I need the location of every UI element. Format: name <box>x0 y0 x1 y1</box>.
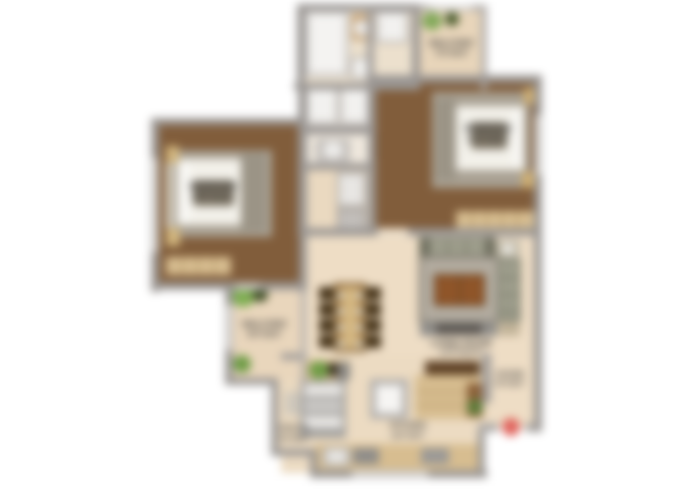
svg-text:3'0"X8'0": 3'0"X8'0" <box>279 436 309 443</box>
svg-text:11'0"X10'0": 11'0"X10'0" <box>467 134 510 143</box>
svg-text:5'0"X6'0": 5'0"X6'0" <box>495 381 525 388</box>
svg-text:FOYER: FOYER <box>496 370 524 379</box>
svg-text:BALCONY: BALCONY <box>243 319 288 329</box>
svg-text:8'0"X4'6": 8'0"X4'6" <box>248 330 283 339</box>
svg-text:LIVING ROOM: LIVING ROOM <box>431 338 492 348</box>
svg-text:BEDROOM: BEDROOM <box>190 181 237 191</box>
svg-text:17'0"X11'0": 17'0"X11'0" <box>440 348 483 357</box>
svg-text:KITCHEN: KITCHEN <box>390 421 426 430</box>
svg-text:BALCONY: BALCONY <box>430 38 475 48</box>
svg-text:10'0"X8'0": 10'0"X8'0" <box>391 433 425 440</box>
svg-text:10'0"X11'6": 10'0"X11'6" <box>192 192 235 201</box>
svg-text:UTILITY: UTILITY <box>279 424 310 433</box>
svg-text:BEDROOM: BEDROOM <box>465 123 512 133</box>
svg-text:7'6"X4'0": 7'6"X4'0" <box>435 49 470 58</box>
